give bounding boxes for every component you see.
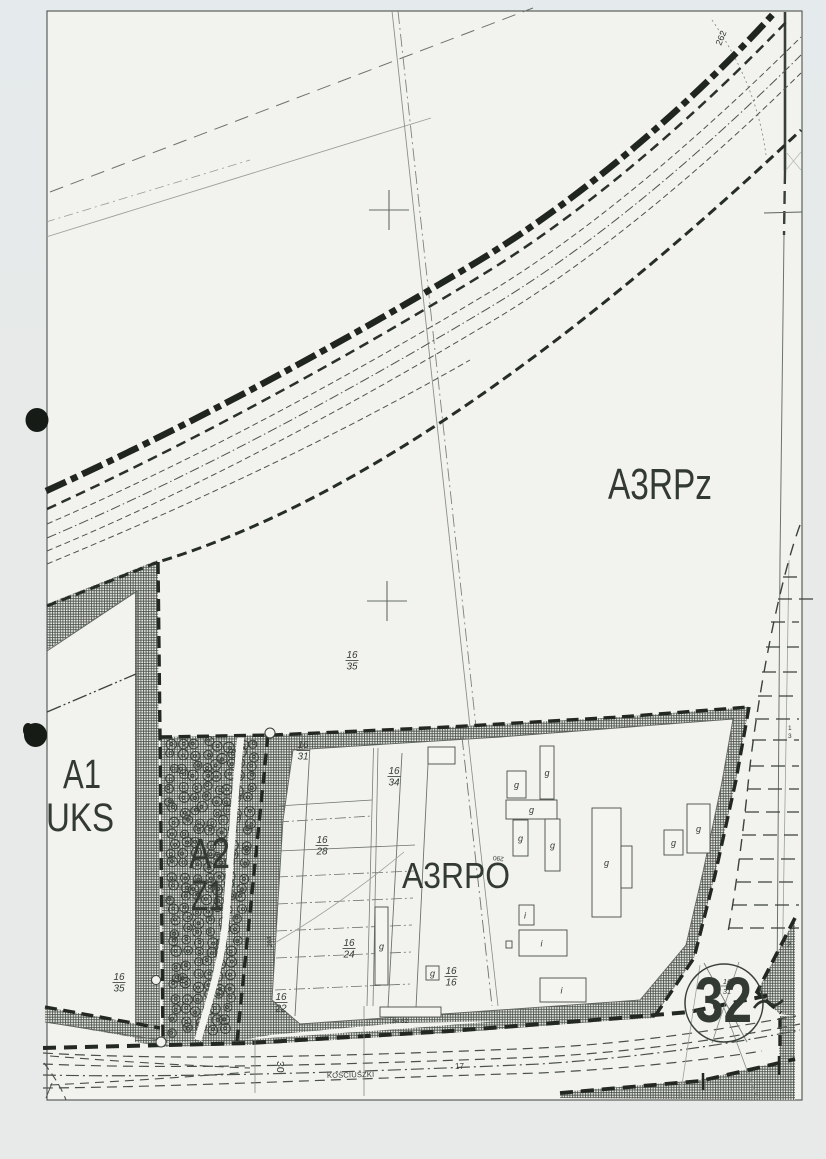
svg-text:g: g <box>529 805 534 815</box>
svg-text:16: 16 <box>113 972 125 983</box>
svg-text:Z1: Z1 <box>191 872 224 920</box>
svg-text:16: 16 <box>297 740 309 751</box>
svg-text:34: 34 <box>388 778 400 789</box>
svg-text:g: g <box>430 969 435 979</box>
svg-text:31: 31 <box>297 752 308 763</box>
svg-text:16: 16 <box>445 978 457 989</box>
svg-text:A2: A2 <box>189 830 230 878</box>
svg-text:30: 30 <box>274 1061 286 1073</box>
svg-text:A1: A1 <box>63 751 101 797</box>
svg-text:g: g <box>696 824 701 834</box>
svg-text:35: 35 <box>113 984 125 995</box>
svg-text:g: g <box>545 768 550 778</box>
svg-text:35: 35 <box>346 662 358 673</box>
svg-text:17: 17 <box>455 1062 464 1071</box>
svg-text:16: 16 <box>275 992 287 1003</box>
svg-text:1: 1 <box>788 725 792 732</box>
svg-text:16: 16 <box>343 938 355 949</box>
svg-text:UKS: UKS <box>46 796 114 840</box>
svg-text:24: 24 <box>342 950 355 961</box>
svg-text:264: 264 <box>266 936 274 948</box>
svg-text:KOŚCIUSZKI: KOŚCIUSZKI <box>327 1070 375 1080</box>
svg-text:g: g <box>518 834 523 844</box>
svg-text:g: g <box>550 841 555 851</box>
svg-text:16: 16 <box>346 650 358 661</box>
svg-text:16: 16 <box>388 766 400 777</box>
svg-text:22: 22 <box>274 1004 287 1015</box>
svg-text:32: 32 <box>695 964 752 1036</box>
svg-text:84 82: 84 82 <box>392 1018 409 1025</box>
svg-text:28: 28 <box>315 847 328 858</box>
svg-text:g: g <box>604 858 609 868</box>
svg-text:16: 16 <box>316 835 328 846</box>
svg-text:16: 16 <box>445 966 457 977</box>
svg-text:A3RPO: A3RPO <box>402 855 510 896</box>
svg-text:g: g <box>671 838 676 848</box>
svg-text:2: 2 <box>787 942 791 949</box>
svg-text:3: 3 <box>788 733 792 740</box>
svg-text:g: g <box>514 780 519 790</box>
svg-text:A3RPz: A3RPz <box>608 460 712 509</box>
svg-text:g: g <box>379 942 384 952</box>
